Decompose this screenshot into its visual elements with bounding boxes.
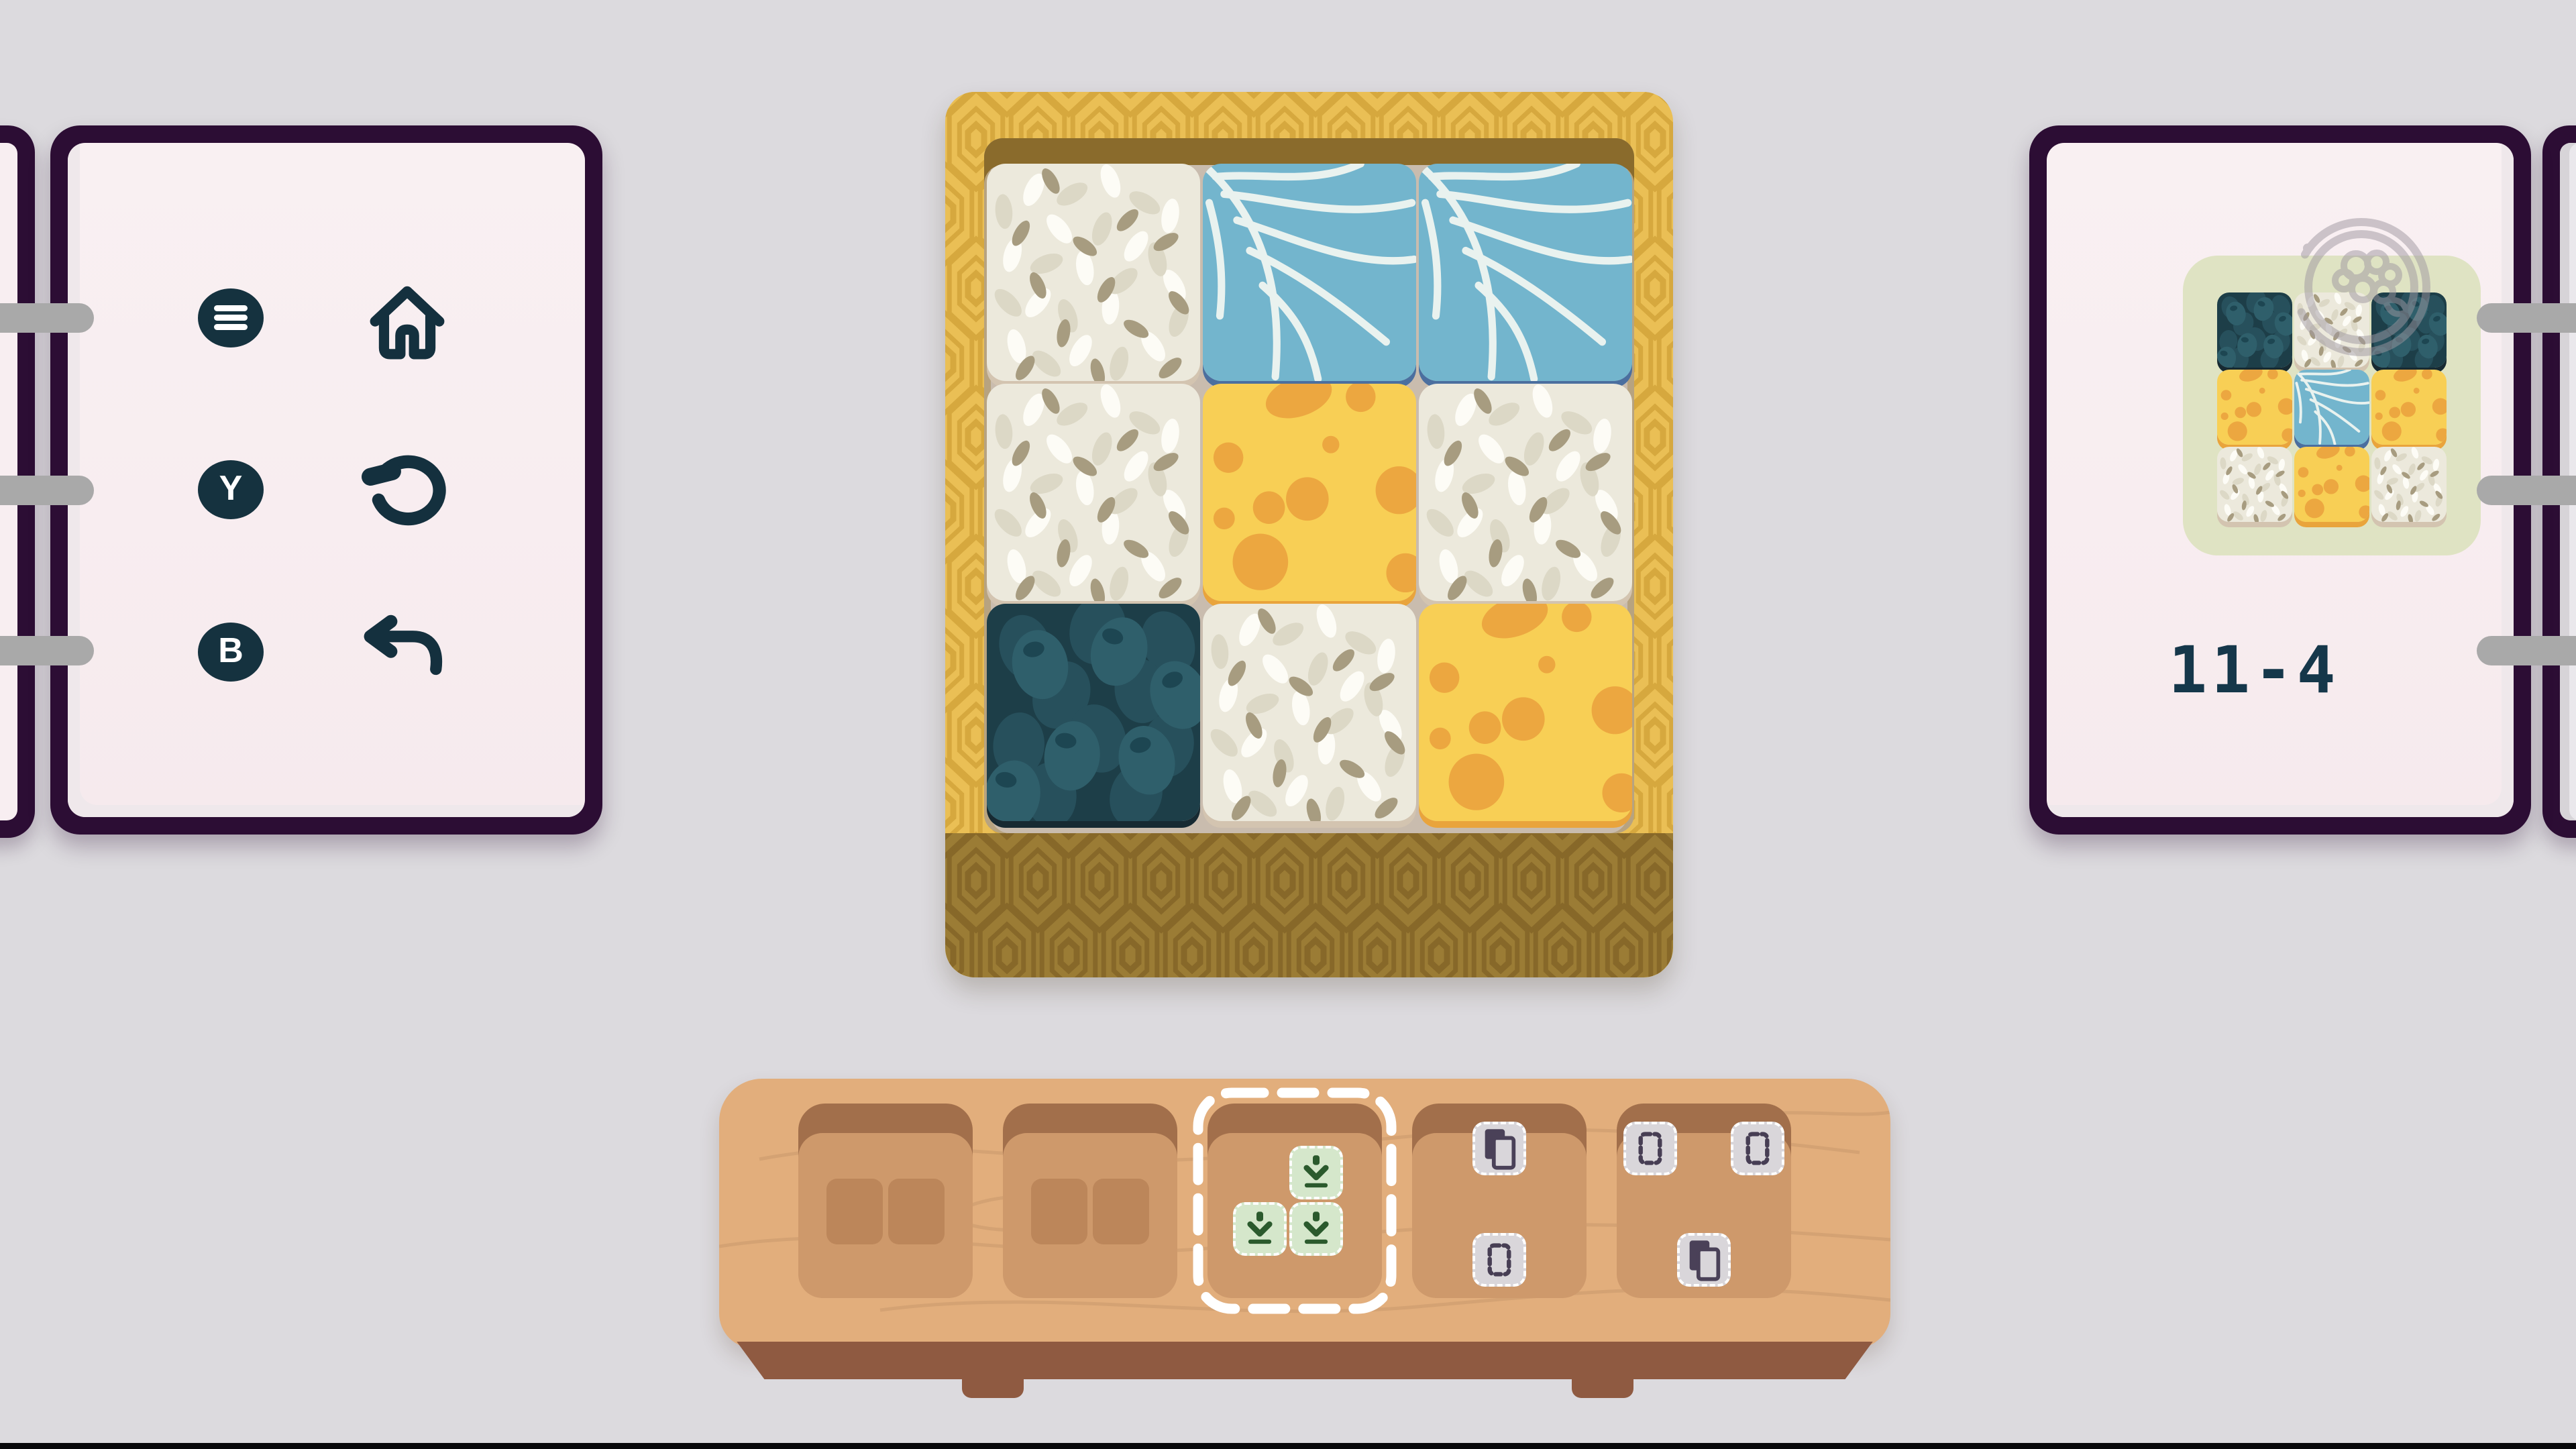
restart-button[interactable] bbox=[361, 441, 449, 530]
hamburger-icon bbox=[213, 305, 249, 331]
tray-foot bbox=[962, 1374, 1024, 1398]
tray-slot-5-available[interactable] bbox=[1617, 1104, 1791, 1298]
binder-ring bbox=[2477, 476, 2576, 505]
dashed-box-icon bbox=[1635, 1128, 1666, 1169]
undo-icon bbox=[360, 613, 448, 682]
push-down-icon bbox=[1301, 1209, 1332, 1249]
goal-tile-r1c2-cheese bbox=[2371, 370, 2447, 445]
tray-slot-1-spent[interactable] bbox=[798, 1104, 973, 1298]
bento-box bbox=[945, 92, 1673, 977]
goal-panel-page: 11-4 bbox=[2047, 143, 2514, 817]
board-tile-r0c2-leaf[interactable] bbox=[1419, 164, 1632, 381]
tray-base bbox=[730, 1342, 1880, 1379]
piece-tray bbox=[719, 1079, 1890, 1449]
tray-slot-3-selected[interactable] bbox=[1207, 1104, 1382, 1298]
board-tile-r0c1-leaf[interactable] bbox=[1203, 164, 1416, 381]
board-tile-r2c1-rice[interactable] bbox=[1203, 604, 1416, 821]
binder-ring bbox=[2477, 303, 2576, 333]
piece-cell-push-down-icon[interactable] bbox=[1233, 1202, 1287, 1256]
board-grid bbox=[987, 164, 1632, 821]
stamp-icon bbox=[2281, 207, 2442, 368]
push-down-icon bbox=[1301, 1152, 1332, 1193]
bento-front-hex-pattern bbox=[945, 833, 1673, 977]
gamepad-b-label: B bbox=[218, 631, 244, 671]
gamepad-b-hint[interactable]: B bbox=[198, 623, 264, 682]
piece-cell-push-down-icon[interactable] bbox=[1289, 1146, 1343, 1199]
piece-cell-copy-icon[interactable] bbox=[1472, 1122, 1526, 1175]
piece-cell-dashed-box-icon[interactable] bbox=[1731, 1122, 1784, 1175]
board-tile-r1c1-cheese[interactable] bbox=[1203, 384, 1416, 601]
piece-cell-dashed-box-icon[interactable] bbox=[1623, 1122, 1677, 1175]
screen-edge-line bbox=[0, 1443, 2576, 1449]
board-tile-r0c0-rice[interactable] bbox=[987, 164, 1200, 381]
tray-slot-4-available[interactable] bbox=[1412, 1104, 1587, 1298]
goal-tile-r1c1-leaf bbox=[2294, 370, 2369, 445]
slot-recess bbox=[798, 1133, 973, 1298]
tray-slot-2-spent[interactable] bbox=[1003, 1104, 1177, 1298]
piece-cell-dashed-box-icon[interactable] bbox=[1472, 1233, 1526, 1287]
dashed-box-icon bbox=[1484, 1240, 1515, 1280]
tray-body bbox=[719, 1079, 1890, 1348]
board-recess bbox=[984, 138, 1634, 833]
push-down-icon bbox=[1244, 1209, 1275, 1249]
undo-button[interactable] bbox=[360, 613, 448, 682]
menu-panel-page: Y B bbox=[68, 143, 585, 817]
slot-recess bbox=[1003, 1133, 1177, 1298]
spent-piece-tile bbox=[1031, 1179, 1087, 1244]
goal-panel: 11-4 bbox=[2029, 125, 2531, 835]
menu-button[interactable] bbox=[198, 288, 264, 347]
goal-tile-r2c1-cheese bbox=[2294, 447, 2369, 522]
home-button[interactable] bbox=[366, 278, 448, 360]
menu-panel: Y B bbox=[50, 125, 602, 835]
board-tile-r2c0-olives[interactable] bbox=[987, 604, 1200, 821]
board-tile-r2c2-cheese[interactable] bbox=[1419, 604, 1632, 821]
binder-ring bbox=[2477, 636, 2576, 665]
restart-icon bbox=[361, 441, 449, 530]
goal-tile-r2c2-rice bbox=[2371, 447, 2447, 522]
bento-front-face bbox=[945, 833, 1673, 977]
game-screen: Y B bbox=[0, 0, 2576, 1449]
board-tile-r1c0-rice[interactable] bbox=[987, 384, 1200, 601]
binder-ring bbox=[0, 303, 94, 333]
spent-piece-tile bbox=[826, 1179, 883, 1244]
copy-icon bbox=[1481, 1127, 1517, 1170]
copy-icon bbox=[1686, 1238, 1722, 1281]
spent-piece-tile bbox=[888, 1179, 945, 1244]
gamepad-y-label: Y bbox=[219, 468, 243, 508]
goal-tile-r1c0-cheese bbox=[2217, 370, 2292, 445]
binder-ring bbox=[0, 476, 94, 505]
spent-piece-tile bbox=[1093, 1179, 1149, 1244]
level-label: 11-4 bbox=[2021, 633, 2487, 708]
goal-tile-r2c0-rice bbox=[2217, 447, 2292, 522]
piece-cell-push-down-icon[interactable] bbox=[1289, 1202, 1343, 1256]
piece-cell-copy-icon[interactable] bbox=[1677, 1233, 1731, 1287]
binder-ring bbox=[0, 636, 94, 665]
board-tile-r1c2-rice[interactable] bbox=[1419, 384, 1632, 601]
gamepad-y-hint[interactable]: Y bbox=[198, 460, 264, 519]
dashed-box-icon bbox=[1742, 1128, 1773, 1169]
tray-foot bbox=[1572, 1374, 1633, 1398]
home-icon bbox=[366, 278, 448, 360]
